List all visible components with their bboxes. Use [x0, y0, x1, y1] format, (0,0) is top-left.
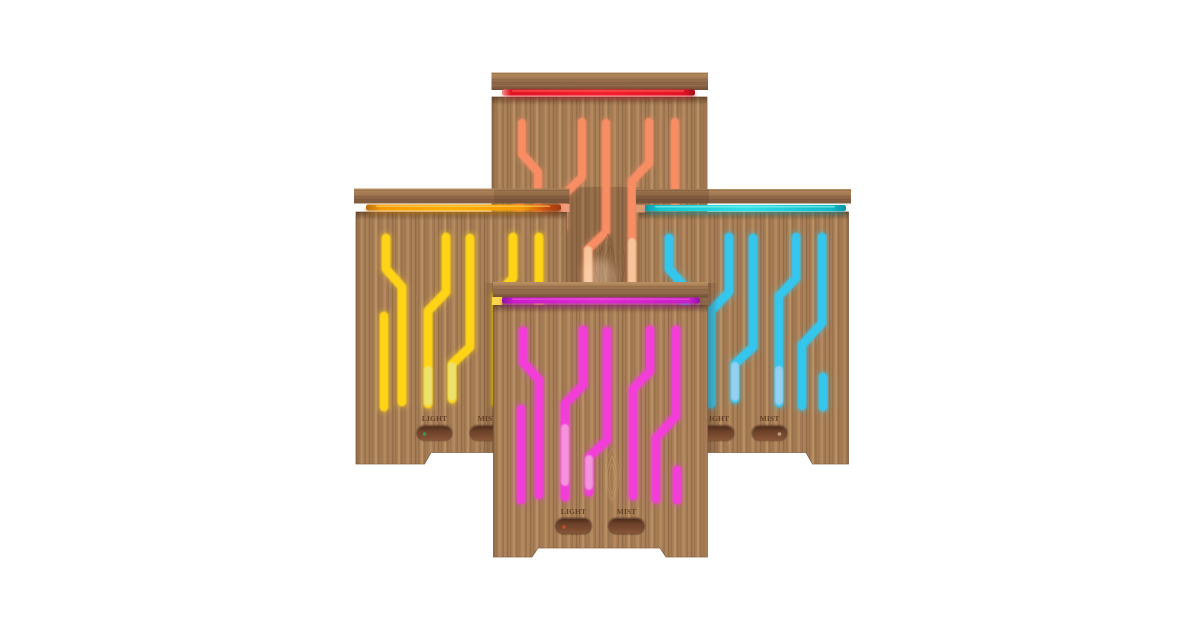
svg-text:LIGHT: LIGHT [422, 414, 447, 423]
svg-text:MIST: MIST [617, 507, 637, 516]
svg-text:MIST: MIST [760, 414, 780, 423]
svg-text:LIGHT: LIGHT [561, 507, 586, 516]
